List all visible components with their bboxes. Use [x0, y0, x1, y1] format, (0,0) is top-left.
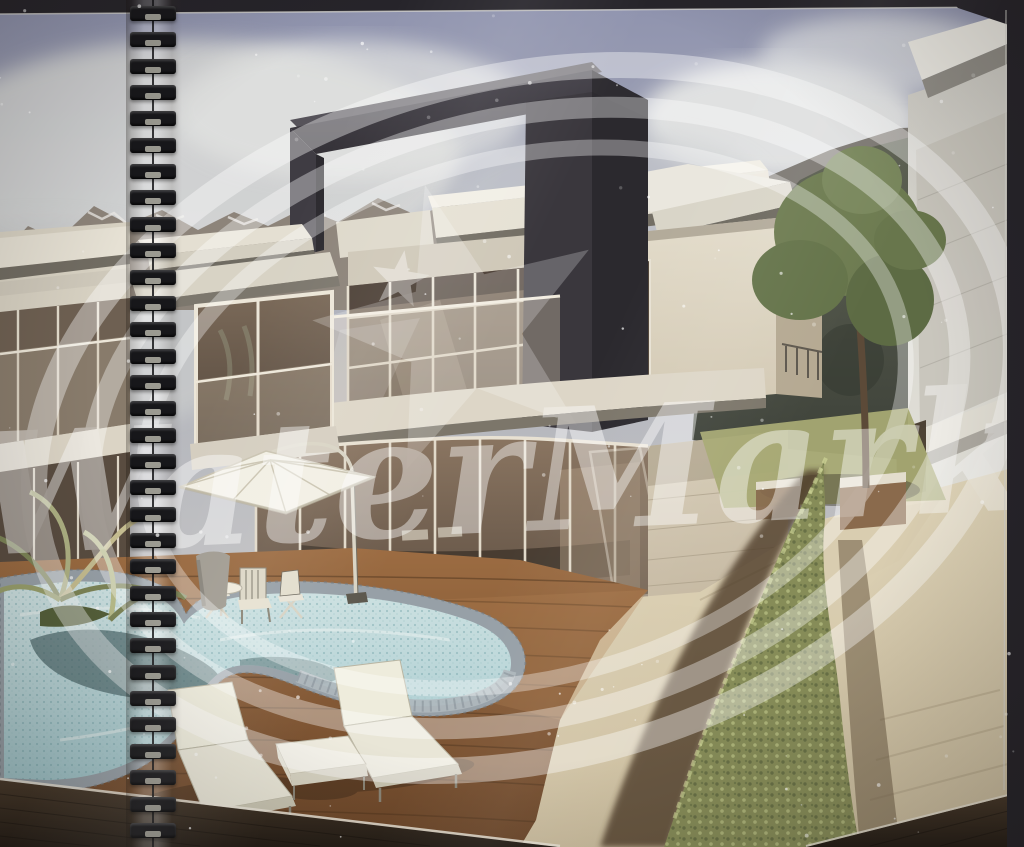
dust-speckles [0, 0, 1024, 847]
photo-of-brochure-page: WaterMark [0, 0, 1024, 847]
